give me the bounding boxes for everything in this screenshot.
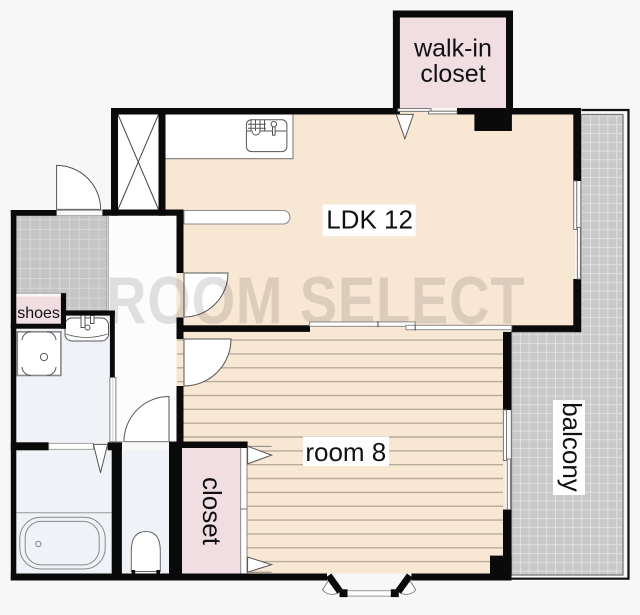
- svg-text:room 8: room 8: [305, 437, 386, 467]
- svg-text:closet: closet: [197, 477, 227, 546]
- svg-text:shoes: shoes: [17, 305, 60, 322]
- svg-text:closet: closet: [420, 60, 485, 88]
- svg-text:walk-in: walk-in: [413, 35, 492, 63]
- svg-text:balcony: balcony: [557, 402, 587, 492]
- svg-text:LDK 12: LDK 12: [326, 205, 413, 235]
